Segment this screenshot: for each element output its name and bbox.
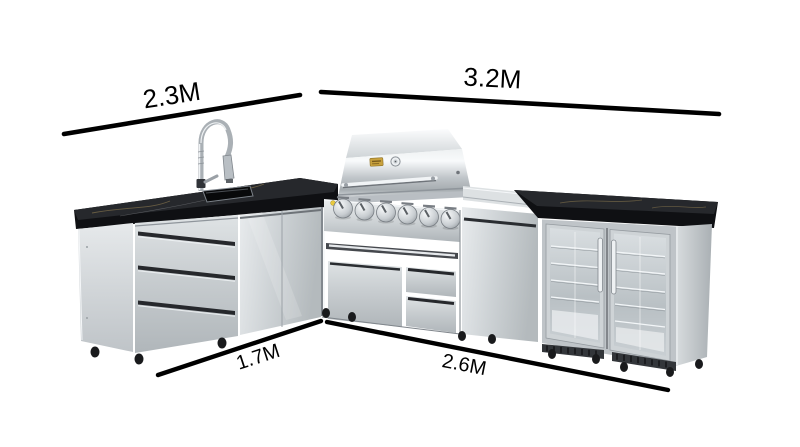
cabinet-door: [462, 207, 538, 342]
caster-foot: [322, 308, 330, 318]
caster-foot: [135, 354, 144, 365]
dimension-label-top-left: 2.3M: [141, 76, 203, 115]
dimension-label-top-right: 3.2M: [463, 62, 522, 95]
fridge-side-panel: [676, 224, 712, 366]
grill-knob: [355, 201, 374, 222]
faucet-spray-head: [223, 155, 234, 180]
caster-foot: [592, 354, 600, 364]
grill-knob: [420, 208, 439, 229]
hood-vent-dot: [456, 171, 460, 175]
caster-foot: [348, 312, 356, 322]
grill-module: [322, 129, 471, 334]
caster-foot: [666, 367, 674, 377]
caster-foot: [91, 347, 100, 358]
grill-badge-icon: [370, 158, 383, 167]
grill-knob: [334, 199, 353, 220]
screw-dot: [86, 317, 88, 319]
faucet-lever: [205, 176, 217, 182]
caster-foot: [218, 338, 227, 349]
handle-mount: [344, 183, 348, 187]
fridge-door-handle: [598, 238, 603, 292]
grill-knob: [441, 210, 460, 231]
faucet: [197, 122, 235, 191]
faucet-nozzle: [226, 179, 233, 183]
door-cabinet-module: [460, 186, 540, 342]
sink-cabinet-side-panel: [78, 223, 133, 352]
caster-foot: [695, 359, 703, 369]
dimension-line-top-right: [321, 92, 719, 114]
corner-cabinet: [240, 207, 324, 335]
grill-lower-door: [328, 261, 402, 327]
screw-dot: [86, 246, 88, 248]
product-dimension-diagram: 2.3M 3.2M 1.7M 2.6M: [0, 0, 800, 447]
grill-knob: [377, 203, 396, 224]
fridge-module: [514, 190, 718, 371]
caster-foot: [458, 331, 466, 341]
dimension-label-bottom-left: 1.7M: [234, 340, 283, 375]
fridge-door-handle: [612, 240, 617, 294]
kitchen-illustration: 2.3M 3.2M 1.7M 2.6M: [0, 0, 800, 447]
handle-mount: [431, 177, 435, 181]
caster-foot: [548, 349, 556, 359]
thermometer-icon: [391, 157, 400, 166]
grill-knob: [398, 205, 417, 226]
caster-foot: [620, 362, 628, 372]
faucet-mixer-body: [197, 179, 206, 188]
caster-foot: [488, 334, 496, 344]
